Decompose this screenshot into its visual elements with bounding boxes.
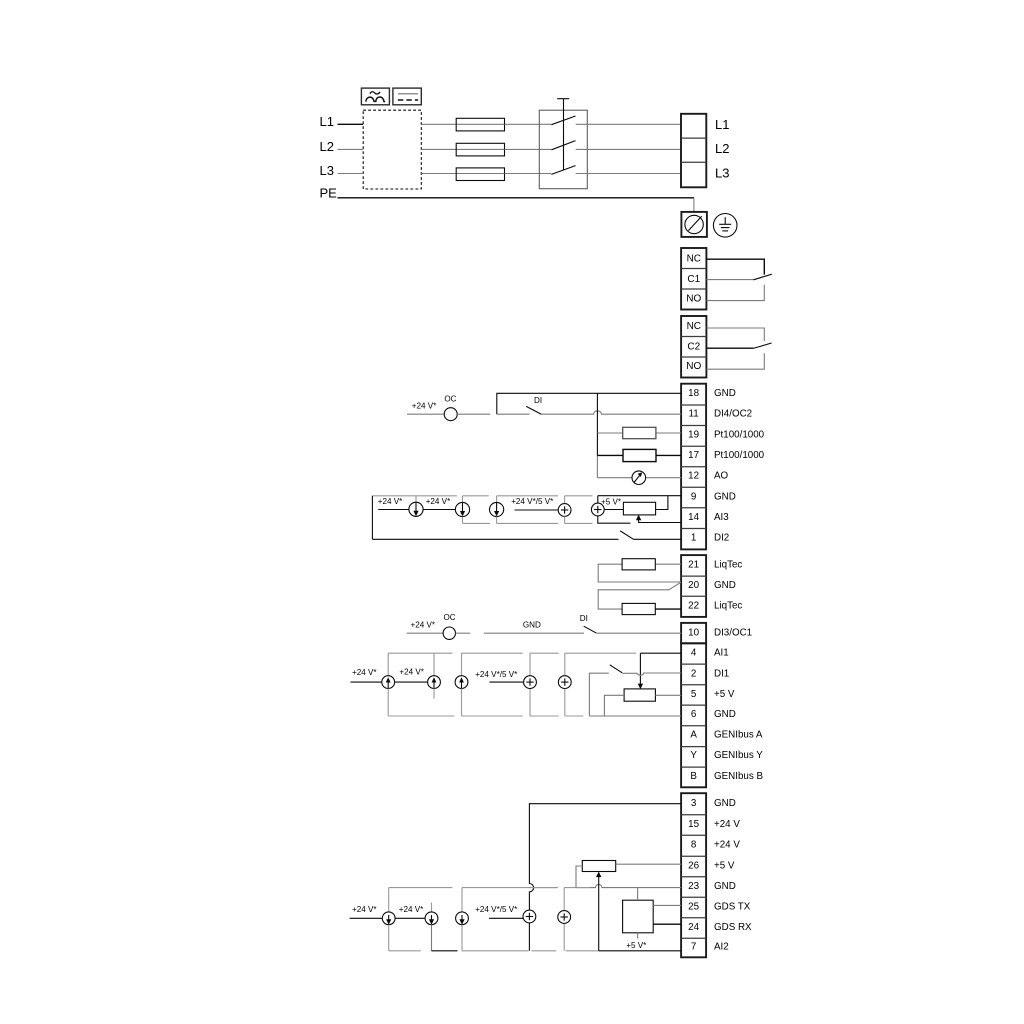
svg-text:+24 V*: +24 V* [399, 905, 424, 914]
svg-text:4: 4 [691, 648, 697, 659]
svg-text:L3: L3 [715, 165, 729, 180]
svg-text:AI1: AI1 [714, 648, 729, 659]
svg-text:11: 11 [689, 409, 699, 420]
svg-text:GND: GND [714, 580, 736, 591]
svg-text:AO: AO [714, 471, 729, 482]
svg-text:12: 12 [688, 471, 699, 482]
svg-text:22: 22 [688, 601, 699, 612]
svg-text:GND: GND [523, 621, 541, 630]
svg-text:+24 V*/5 V*: +24 V*/5 V* [475, 905, 518, 914]
svg-text:PE: PE [320, 185, 338, 200]
svg-text:NO: NO [686, 361, 701, 372]
svg-text:GENIbus Y: GENIbus Y [714, 750, 763, 761]
svg-text:+24 V*: +24 V* [378, 497, 403, 506]
svg-text:DI1: DI1 [714, 668, 729, 679]
svg-text:+24 V*: +24 V* [352, 668, 377, 677]
svg-text:A: A [690, 730, 697, 741]
svg-text:20: 20 [688, 580, 699, 591]
svg-text:+24 V*: +24 V* [399, 668, 424, 677]
svg-text:C1: C1 [687, 274, 700, 285]
svg-text:GND: GND [714, 709, 736, 720]
svg-text:C2: C2 [687, 342, 700, 353]
svg-text:AI2: AI2 [714, 942, 729, 953]
svg-text:B: B [690, 771, 697, 782]
svg-text:L3: L3 [320, 163, 334, 178]
svg-text:GDS RX: GDS RX [714, 922, 752, 933]
svg-text:DI: DI [580, 614, 588, 623]
svg-text:LiqTec: LiqTec [714, 601, 742, 612]
svg-text:GDS TX: GDS TX [714, 901, 751, 912]
svg-text:6: 6 [691, 709, 697, 720]
svg-text:8: 8 [691, 840, 697, 851]
svg-text:GND: GND [714, 881, 736, 892]
svg-text:+24 V*: +24 V* [411, 621, 436, 630]
svg-text:DI: DI [534, 396, 542, 405]
svg-text:+24 V*/5 V*: +24 V*/5 V* [475, 670, 518, 679]
svg-text:DI3/OC1: DI3/OC1 [714, 627, 752, 638]
svg-text:GND: GND [714, 491, 736, 502]
svg-text:+5 V*: +5 V* [626, 941, 647, 950]
svg-text:NC: NC [687, 253, 701, 264]
svg-text:23: 23 [688, 881, 699, 892]
svg-text:26: 26 [688, 860, 699, 871]
svg-text:9: 9 [691, 491, 696, 502]
svg-text:17: 17 [688, 450, 699, 461]
svg-text:18: 18 [688, 388, 699, 399]
svg-text:+5 V: +5 V [714, 689, 735, 700]
svg-text:L2: L2 [715, 141, 729, 156]
svg-text:NO: NO [686, 294, 701, 305]
svg-text:3: 3 [691, 798, 697, 809]
svg-text:15: 15 [688, 819, 699, 830]
svg-text:NC: NC [687, 321, 701, 332]
svg-text:+24 V: +24 V [714, 819, 740, 830]
svg-text:AI3: AI3 [714, 512, 729, 523]
svg-text:2: 2 [691, 668, 696, 679]
svg-text:14: 14 [688, 512, 699, 523]
svg-text:L2: L2 [320, 139, 334, 154]
svg-text:GND: GND [714, 798, 736, 809]
svg-text:21: 21 [688, 560, 699, 571]
svg-text:5: 5 [691, 689, 697, 700]
svg-text:+24 V*: +24 V* [412, 401, 437, 410]
svg-text:1: 1 [691, 533, 696, 544]
svg-text:LiqTec: LiqTec [714, 560, 742, 571]
svg-text:GENIbus A: GENIbus A [714, 730, 763, 741]
svg-text:Pt100/1000: Pt100/1000 [714, 450, 765, 461]
svg-text:GND: GND [714, 388, 736, 399]
svg-text:GENIbus B: GENIbus B [714, 771, 763, 782]
svg-text:Y: Y [690, 750, 697, 761]
svg-text:DI2: DI2 [714, 533, 729, 544]
svg-text:DI4/OC2: DI4/OC2 [714, 409, 752, 420]
svg-text:7: 7 [691, 942, 696, 953]
svg-text:+24 V: +24 V [714, 840, 740, 851]
svg-text:10: 10 [688, 627, 699, 638]
svg-text:OC: OC [444, 395, 456, 404]
svg-text:L1: L1 [320, 114, 334, 129]
svg-text:L1: L1 [715, 117, 729, 132]
svg-text:+24 V*: +24 V* [426, 497, 451, 506]
svg-text:OC: OC [444, 613, 456, 622]
svg-text:Pt100/1000: Pt100/1000 [714, 429, 765, 440]
svg-text:24: 24 [688, 922, 699, 933]
svg-text:25: 25 [688, 901, 699, 912]
svg-text:+24 V*: +24 V* [352, 905, 377, 914]
svg-text:19: 19 [688, 429, 699, 440]
svg-text:+5 V: +5 V [714, 860, 735, 871]
svg-text:+5 V*: +5 V* [601, 497, 622, 506]
svg-text:+24 V*/5 V*: +24 V*/5 V* [511, 497, 554, 506]
